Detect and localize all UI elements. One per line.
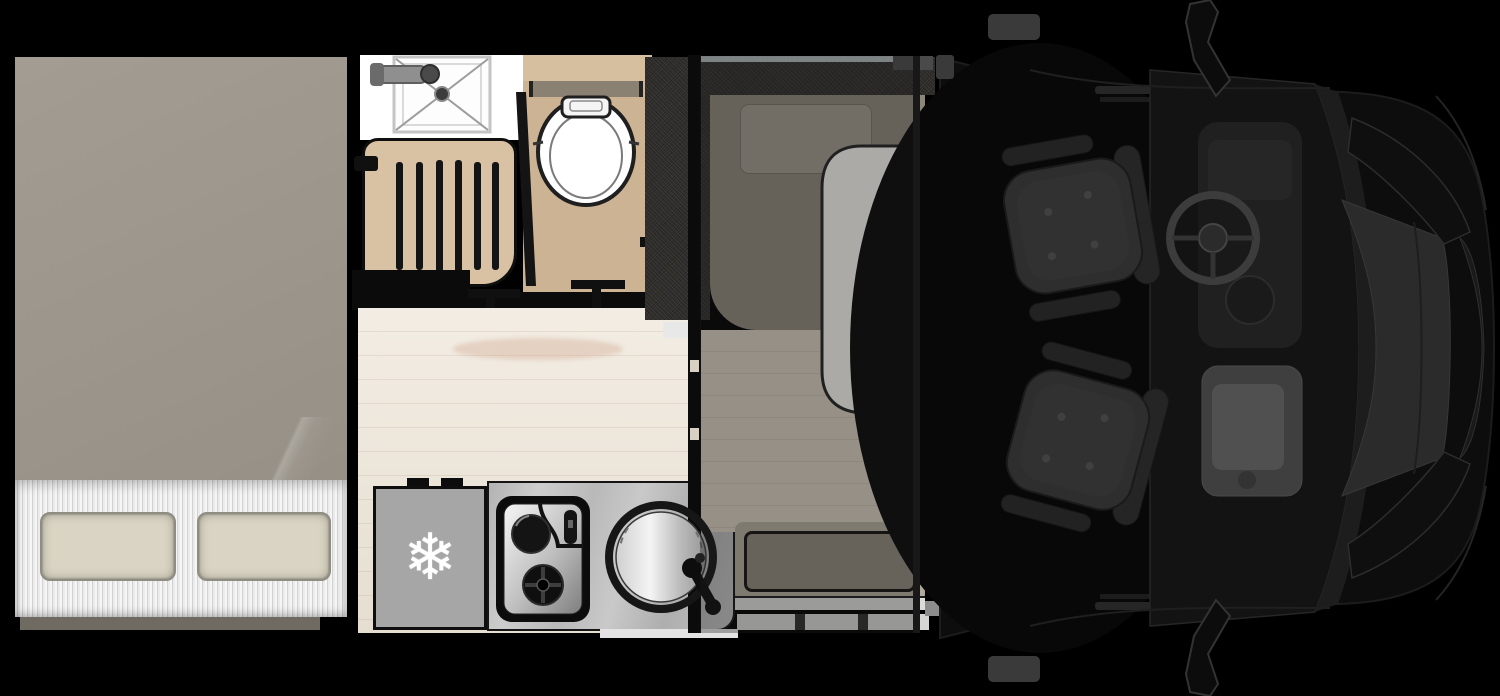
bumper-line	[1436, 96, 1486, 210]
seat-backrest	[1112, 144, 1162, 286]
b-pillar-bottom	[988, 656, 1040, 682]
wall-end-cap	[936, 55, 954, 79]
b-pillar-top	[988, 14, 1040, 40]
fridge-snowflake-icon: ❄	[403, 526, 457, 590]
toilet-cistern-shelf	[529, 81, 643, 97]
fridge-hinge	[441, 478, 463, 487]
cabinet-slat	[492, 162, 499, 270]
wall-hinge-gap	[690, 428, 699, 440]
cabinet-slat	[474, 162, 481, 270]
cab-seat-driver	[995, 126, 1165, 324]
center-console	[1202, 366, 1302, 496]
fridge-hinge	[407, 478, 429, 487]
pillow-left	[40, 512, 176, 581]
cabinet-knob	[354, 156, 378, 171]
door-sill-bottom	[1095, 602, 1213, 610]
bathroom-wall	[352, 270, 470, 310]
floor-tab	[925, 601, 953, 616]
roof-line	[1030, 608, 1330, 626]
hood	[1342, 200, 1450, 496]
wing-mirror-top	[1186, 0, 1230, 96]
cabinet-slat	[436, 160, 443, 278]
cabinet-slat	[455, 160, 462, 278]
cab-entry-wood-floor	[920, 118, 995, 542]
shower-room-floor	[360, 55, 523, 140]
cab-seat-passenger	[993, 338, 1176, 545]
grille	[1460, 238, 1484, 458]
wall-hinge-gap	[690, 360, 699, 372]
bumper-line	[1436, 486, 1486, 600]
dashboard	[1198, 122, 1302, 348]
door-sill-top	[1095, 86, 1213, 94]
floorplan-canvas: ❄	[0, 0, 1500, 696]
cabinet-slat	[416, 162, 423, 270]
headlight-right	[1348, 452, 1470, 578]
drop-down-bed-overlay	[700, 56, 920, 633]
hood-crease	[1414, 222, 1422, 474]
pillow-right	[197, 512, 331, 581]
armrest	[1001, 133, 1095, 167]
steering-wheel	[1170, 195, 1256, 281]
seat-backrest	[1110, 386, 1171, 528]
wing-mirror-bottom	[1186, 600, 1230, 696]
cab-body	[940, 58, 1494, 638]
armrest	[1028, 289, 1122, 323]
bed-foot-trim	[20, 617, 320, 630]
toilet-room-top-band	[523, 55, 652, 81]
sofa-end-step	[663, 322, 690, 338]
cabinet-slat	[396, 162, 403, 270]
armrest	[999, 493, 1093, 534]
headlight-left	[1348, 118, 1470, 244]
fridge: ❄	[373, 486, 487, 630]
cowl	[1315, 84, 1376, 612]
windshield	[1150, 70, 1359, 626]
roof-line	[1030, 70, 1330, 88]
armrest	[1040, 340, 1134, 381]
